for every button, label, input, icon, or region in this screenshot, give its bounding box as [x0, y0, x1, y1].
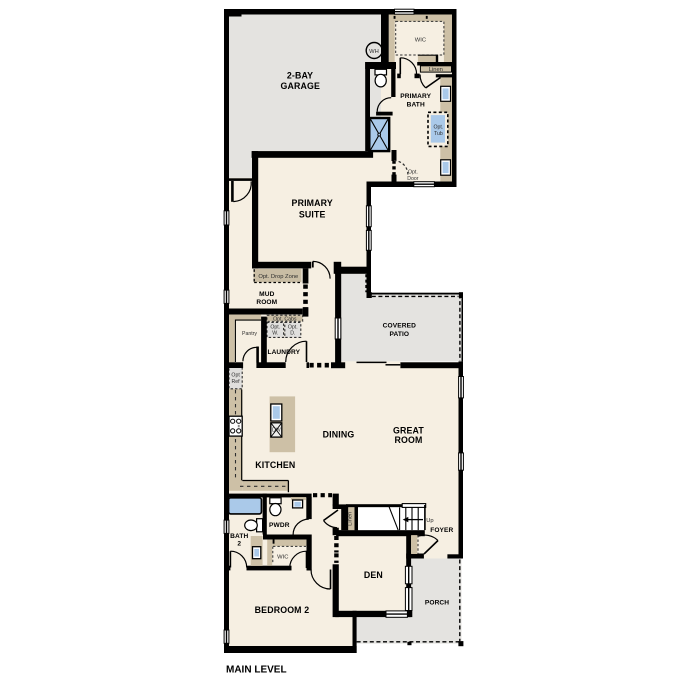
- svg-text:SUITE: SUITE: [299, 210, 326, 220]
- svg-text:WIC: WIC: [415, 38, 426, 44]
- svg-text:Opt.: Opt.: [433, 125, 443, 131]
- svg-text:Door: Door: [407, 176, 419, 182]
- svg-text:PRIMARY: PRIMARY: [292, 198, 333, 208]
- svg-text:WH: WH: [369, 49, 379, 55]
- svg-text:COVERED: COVERED: [383, 323, 416, 330]
- svg-text:ROOM: ROOM: [256, 299, 277, 306]
- svg-text:BATH: BATH: [407, 101, 425, 108]
- svg-text:Opt. Drop Zone: Opt. Drop Zone: [258, 274, 298, 280]
- svg-text:MUD: MUD: [259, 291, 274, 298]
- svg-text:LAUNDRY: LAUNDRY: [267, 349, 300, 356]
- svg-text:BATH: BATH: [230, 533, 248, 540]
- svg-text:PWDR: PWDR: [269, 522, 290, 529]
- svg-text:DINING: DINING: [323, 430, 355, 440]
- svg-text:ROOM: ROOM: [395, 435, 423, 445]
- svg-text:Tub: Tub: [434, 131, 443, 137]
- svg-text:GREAT: GREAT: [393, 425, 424, 435]
- svg-text:2-BAY: 2-BAY: [287, 70, 313, 80]
- svg-text:PATIO: PATIO: [389, 331, 409, 338]
- svg-text:PORCH: PORCH: [425, 600, 449, 607]
- svg-text:PRIMARY: PRIMARY: [400, 93, 431, 100]
- svg-text:MAIN LEVEL: MAIN LEVEL: [226, 665, 287, 676]
- svg-text:DEN: DEN: [364, 570, 383, 580]
- svg-text:Linen: Linen: [429, 67, 443, 73]
- svg-text:BEDROOM 2: BEDROOM 2: [255, 605, 310, 615]
- svg-text:WIC: WIC: [277, 555, 288, 561]
- svg-text:Opt. Cabs: Opt. Cabs: [273, 317, 297, 323]
- svg-text:Up: Up: [426, 518, 433, 524]
- svg-text:Linen: Linen: [347, 512, 353, 526]
- svg-text:Opt.: Opt.: [288, 324, 298, 330]
- svg-text:Opt.: Opt.: [270, 324, 280, 330]
- svg-text:W.: W.: [272, 331, 278, 337]
- svg-text:Ref: Ref: [232, 379, 241, 385]
- svg-text:Pantry: Pantry: [242, 331, 257, 337]
- svg-text:Opt.: Opt.: [408, 170, 418, 176]
- svg-text:Opt: Opt: [231, 373, 240, 379]
- svg-text:D.: D.: [290, 331, 295, 337]
- svg-text:2: 2: [237, 541, 241, 548]
- svg-text:GARAGE: GARAGE: [281, 81, 321, 91]
- svg-text:DW: DW: [272, 428, 281, 434]
- svg-text:KITCHEN: KITCHEN: [255, 460, 295, 470]
- svg-text:FOYER: FOYER: [430, 527, 453, 534]
